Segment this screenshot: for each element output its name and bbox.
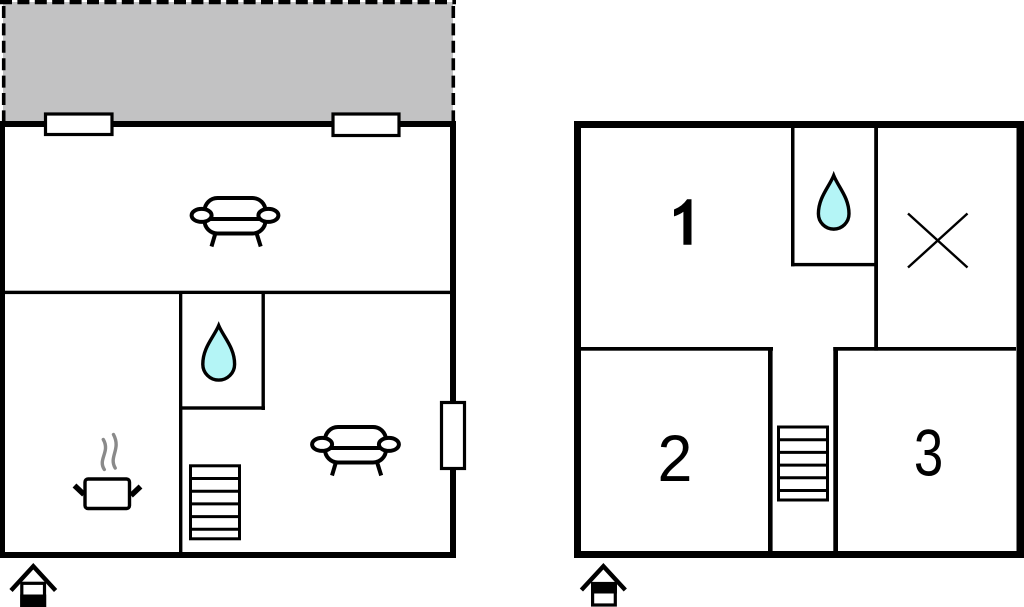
svg-text:3: 3	[914, 416, 943, 490]
svg-text:2: 2	[658, 422, 693, 496]
